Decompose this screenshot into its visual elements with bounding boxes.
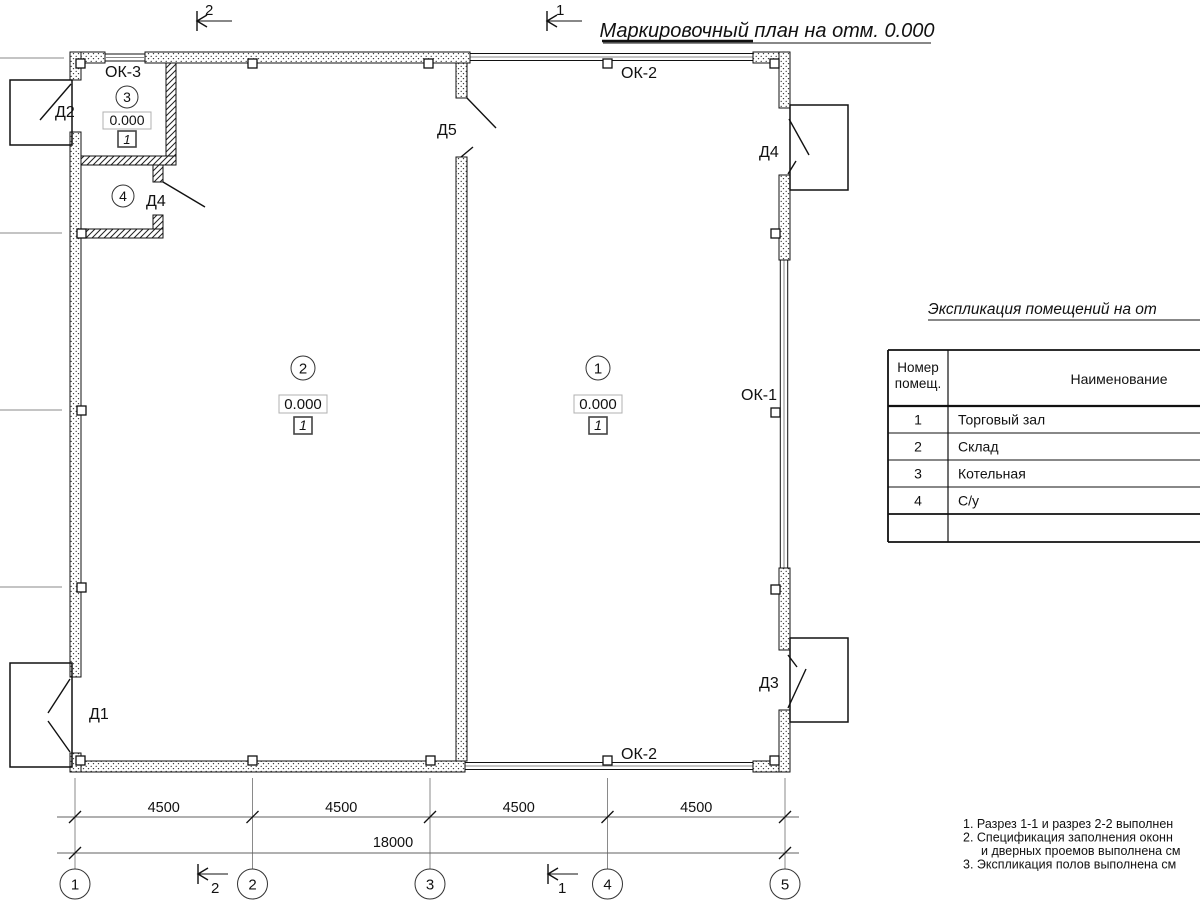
dim-4500-1: 4500 [148, 800, 180, 816]
dim-total-18000: 18000 [373, 835, 413, 851]
section-1-top-number: 1 [556, 2, 564, 19]
room2-floor-type: 1 [299, 417, 307, 433]
door-d2-label: Д2 [55, 104, 75, 121]
room1-number: 1 [594, 361, 602, 378]
room-mark-4: 4 [112, 185, 134, 207]
legend-row-4-num: 4 [914, 493, 922, 509]
room1-elevation: 0.000 [579, 396, 617, 413]
legend-row-3-num: 3 [914, 466, 922, 482]
drawing-title: Маркировочный план на отм. 0.000 [599, 20, 934, 42]
note-line-4: 3. Экспликация полов выполнена см [963, 858, 1176, 872]
legend-row-2-name: Склад [958, 439, 999, 455]
window-ok2-bottom-label: ОК-2 [621, 746, 657, 763]
section-2-bottom-number: 2 [211, 880, 219, 897]
drawing-title-block: Маркировочный план на отм. 0.000 [599, 20, 934, 43]
note-line-2: 2. Спецификация заполнения оконн [963, 831, 1173, 845]
room3-floor-type: 1 [123, 132, 130, 147]
axis-bubble-5: 5 [781, 877, 789, 894]
window-ok3-label: ОК-3 [105, 64, 141, 81]
axis-bubble-1: 1 [71, 877, 79, 894]
legend-header-name: Наименование [1070, 371, 1167, 387]
legend-row-1-name: Торговый зал [958, 412, 1045, 428]
axis-bubble-3: 3 [426, 877, 434, 894]
dim-4500-4: 4500 [680, 800, 712, 816]
door-d4-right-label: Д4 [759, 144, 779, 161]
window-ok1-label: ОК-1 [741, 387, 777, 404]
legend-row-1-num: 1 [914, 412, 922, 428]
window-ok2-top-label: ОК-2 [621, 65, 657, 82]
door-d4-room4-label: Д4 [146, 193, 166, 210]
room2-number: 2 [299, 361, 307, 378]
dim-4500-2: 4500 [325, 800, 357, 816]
legend-title: Экспликация помещений на от [928, 301, 1157, 318]
legend-header-num-1: Номер [897, 360, 939, 375]
room1-floor-type: 1 [594, 417, 602, 433]
door-d5-label: Д5 [437, 122, 457, 139]
door-d3-label: Д3 [759, 675, 779, 692]
axis-bubble-4: 4 [603, 877, 611, 894]
room4-number: 4 [119, 188, 127, 204]
legend-row-4-name: С/у [958, 493, 979, 509]
note-line-1: 1. Разрез 1-1 и разрез 2-2 выполнен [963, 817, 1173, 831]
dim-4500-3: 4500 [503, 800, 535, 816]
legend-header-num-2: помещ. [895, 376, 941, 391]
legend-row-2-num: 2 [914, 439, 922, 455]
middle-wall [456, 63, 467, 761]
note-line-3: и дверных проемов выполнена см [981, 844, 1180, 858]
room2-elevation: 0.000 [284, 396, 322, 413]
section-2-top-number: 2 [205, 2, 213, 19]
door-d1-label: Д1 [89, 706, 109, 723]
axis-bubble-2: 2 [248, 877, 256, 894]
room3-elevation: 0.000 [109, 112, 144, 128]
room3-number: 3 [123, 89, 131, 105]
notes-block: 1. Разрез 1-1 и разрез 2-2 выполнен 2. С… [963, 817, 1180, 872]
floor-plan-drawing: Маркировочный план на отм. 0.000 [0, 0, 1200, 900]
section-1-bottom-number: 1 [558, 880, 566, 897]
legend-row-3-name: Котельная [958, 466, 1026, 482]
